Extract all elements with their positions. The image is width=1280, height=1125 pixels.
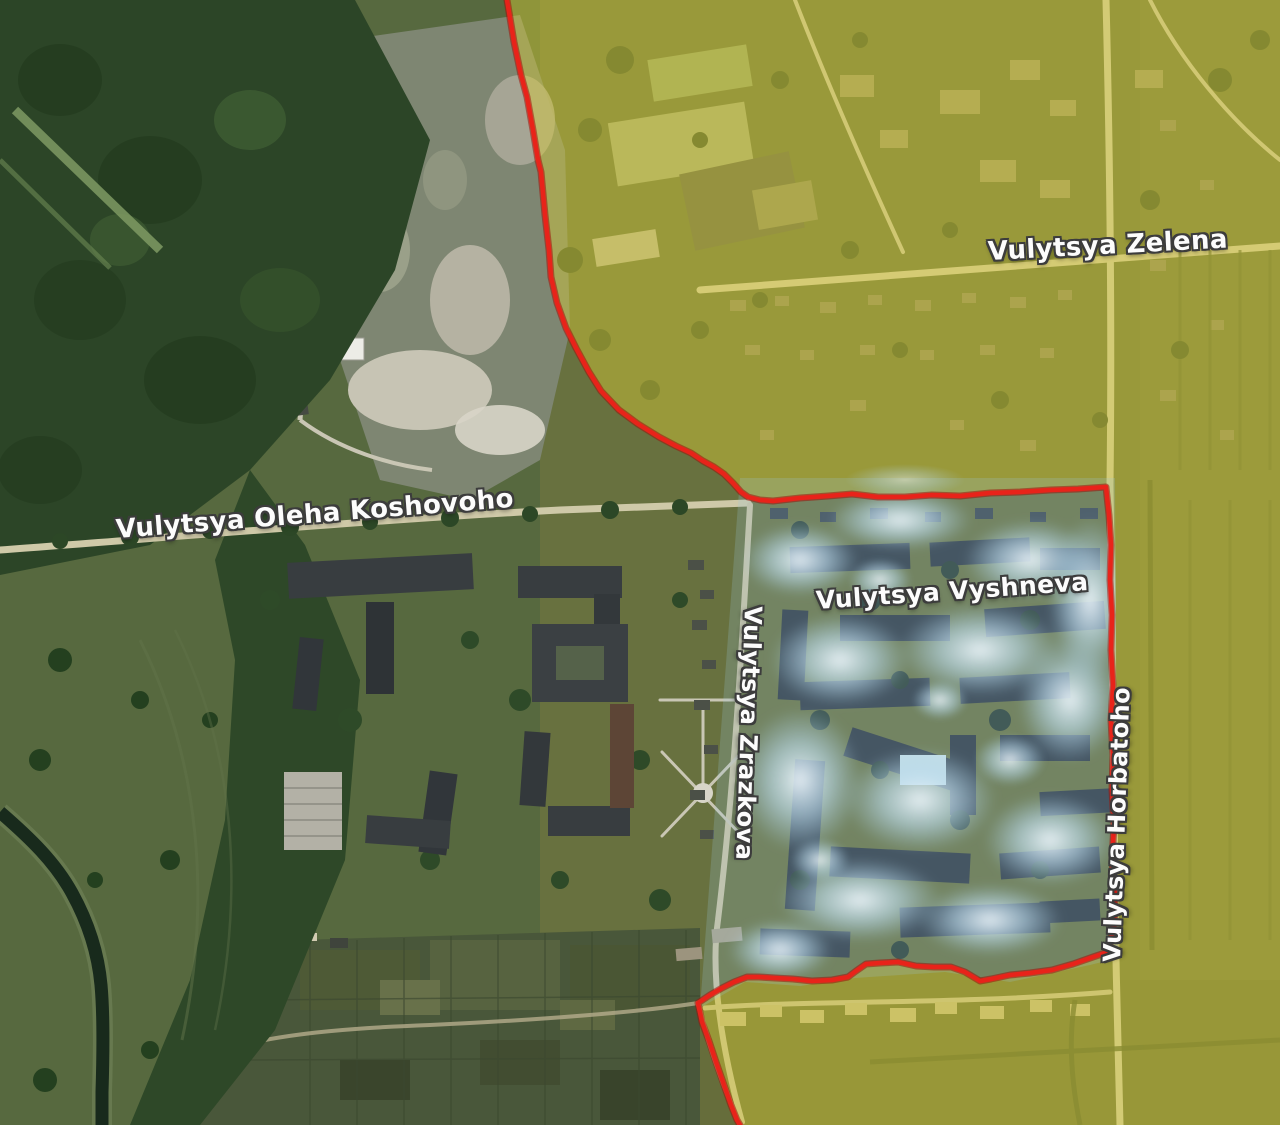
map-canvas <box>0 0 1280 1125</box>
satellite-map: Vulytsya Zelena Vulytsya Oleha Koshovoho… <box>0 0 1280 1125</box>
blue-zone-overlay <box>700 455 1132 1020</box>
smoke-spill <box>845 464 965 496</box>
